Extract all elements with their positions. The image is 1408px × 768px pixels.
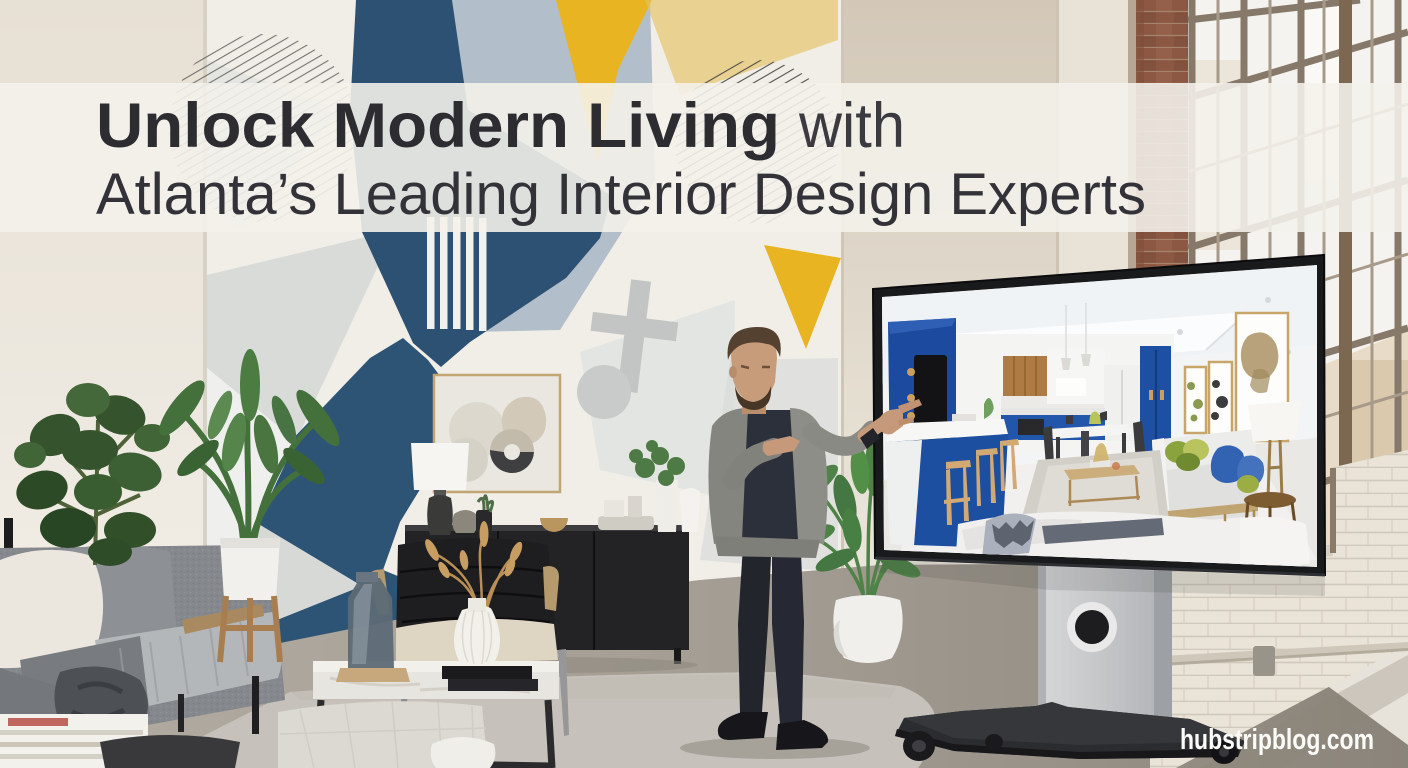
svg-text:hubstripblog.com: hubstripblog.com: [1180, 724, 1374, 756]
svg-text:Atlanta’s Leading Interior Des: Atlanta’s Leading Interior Design Expert…: [96, 162, 1146, 227]
svg-text:Unlock Modern Living: Unlock Modern Living: [96, 91, 780, 161]
svg-text:with: with: [798, 91, 905, 161]
